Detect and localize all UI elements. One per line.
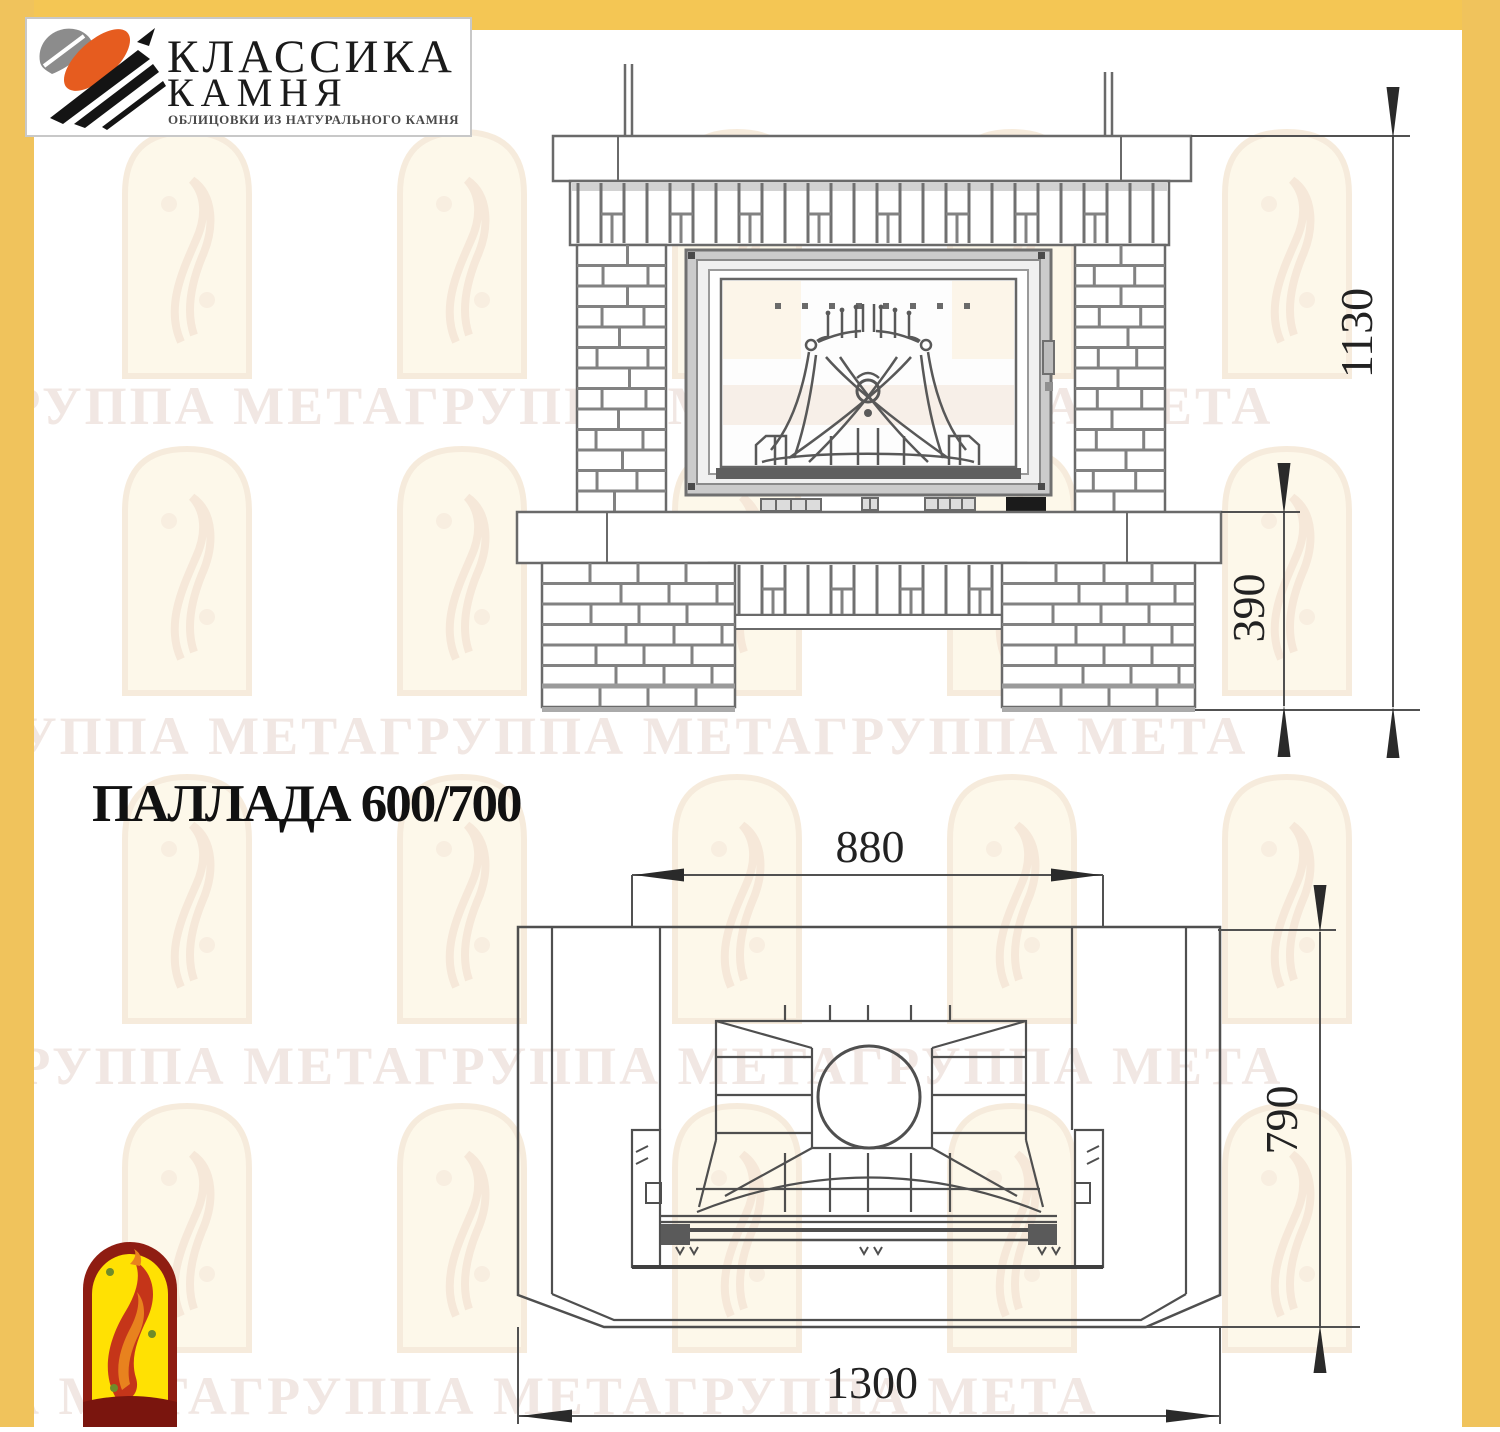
svg-text:880: 880 bbox=[836, 821, 905, 872]
svg-text:790: 790 bbox=[1256, 1086, 1307, 1155]
svg-text:КАМНЯ: КАМНЯ bbox=[167, 70, 349, 115]
svg-text:1130: 1130 bbox=[1331, 288, 1382, 378]
svg-text:ОБЛИЦОВКИ ИЗ НАТУРАЛЬНОГО КАМН: ОБЛИЦОВКИ ИЗ НАТУРАЛЬНОГО КАМНЯ bbox=[168, 112, 459, 127]
svg-text:1300: 1300 bbox=[826, 1357, 918, 1408]
svg-text:390: 390 bbox=[1223, 574, 1274, 643]
svg-text:ГРУППА МЕТАГРУППА МЕТАГРУППА М: ГРУППА МЕТАГРУППА МЕТАГРУППА МЕТА bbox=[0, 1036, 1283, 1096]
svg-text:ПАЛЛАДА 600/700: ПАЛЛАДА 600/700 bbox=[92, 775, 521, 833]
svg-text:ГРУППА МЕТАГРУППА МЕТАГРУППА М: ГРУППА МЕТАГРУППА МЕТАГРУППА МЕТА bbox=[0, 706, 1248, 766]
